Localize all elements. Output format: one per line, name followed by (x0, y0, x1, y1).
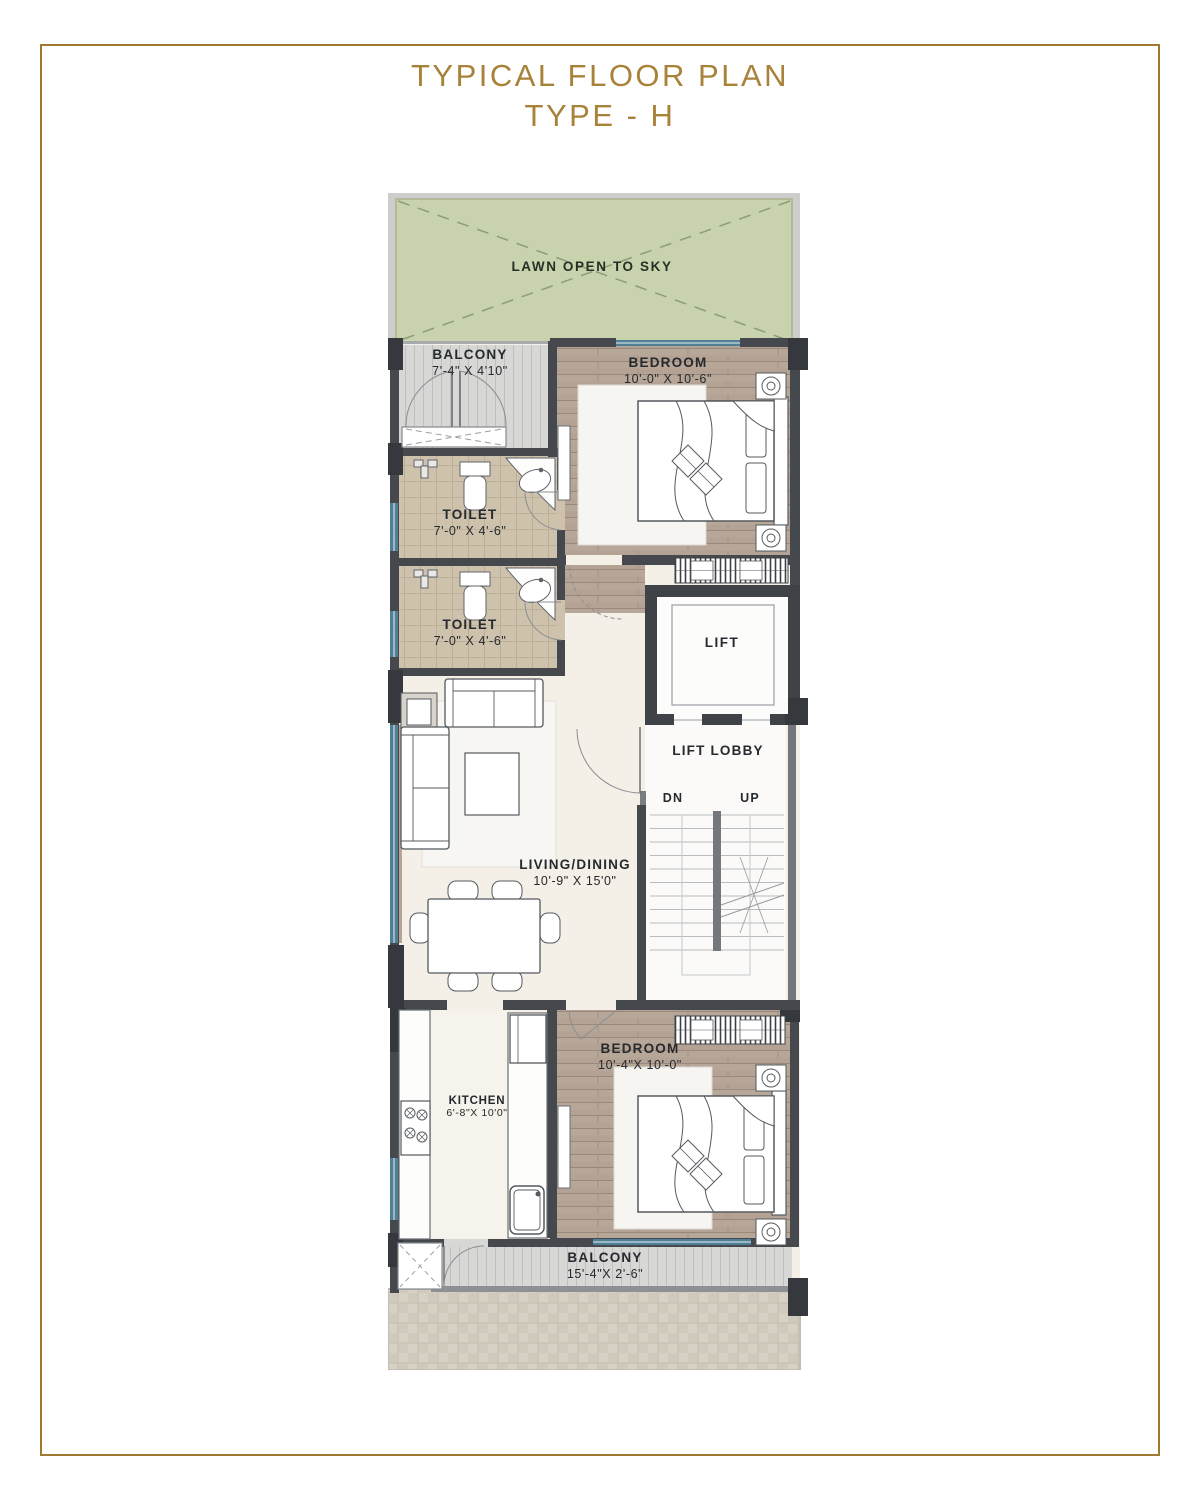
stairs-dn-label: DN (663, 791, 683, 805)
window-kitchen (390, 1158, 398, 1220)
sink-icon (510, 1186, 544, 1234)
tv-console-icon (558, 426, 570, 500)
tv-console-icon (558, 1106, 570, 1188)
wc-tank-icon (460, 462, 490, 476)
window-living (390, 725, 402, 943)
wardrobe-icon (675, 1016, 785, 1044)
window-bedroom-top (616, 340, 740, 346)
toilet-1-label: TOILET 7'-0" X 4'-6" (434, 507, 507, 538)
sofa-icon (401, 727, 449, 849)
window-toilet-2 (390, 611, 398, 657)
bed-icon (638, 1091, 786, 1215)
room-kitchen (430, 1011, 508, 1238)
floor-plan-page: TYPICAL FLOOR PLAN TYPE - H (0, 0, 1200, 1500)
nightstand-icon (756, 1219, 786, 1245)
stairs-divider-wall (713, 811, 721, 951)
lawn-label: LAWN OPEN TO SKY (511, 259, 672, 274)
kitchen-label: KITCHEN 6'-8"X 10'0" (446, 1095, 507, 1119)
page-title-line2: TYPE - H (0, 96, 1200, 136)
lift-lobby-label: LIFT LOBBY (672, 743, 764, 758)
floor-plan: LAWN OPEN TO SKY BALCONY 7'-4" X 4'10" B… (388, 193, 808, 1370)
hob-icon (401, 1101, 430, 1155)
wardrobe-icon (675, 558, 788, 583)
wc-tank-icon (460, 572, 490, 586)
wc-bowl-icon (464, 586, 486, 620)
stairs-up-label: UP (740, 791, 760, 805)
balcony-bottom-label: BALCONY 15'-4"X 2'-6" (567, 1250, 643, 1281)
window-toilet-1 (390, 503, 398, 551)
balcony-top-label: BALCONY 7'-4" X 4'10" (432, 347, 508, 378)
corner-table-icon (401, 693, 437, 731)
nightstand-icon (756, 1065, 786, 1091)
paved-patio (388, 1289, 800, 1370)
bedroom-bottom-label: BEDROOM 10'-4"X 10'-0" (598, 1041, 682, 1072)
page-title: TYPICAL FLOOR PLAN TYPE - H (0, 56, 1200, 136)
fridge-icon (510, 1015, 546, 1063)
wc-bowl-icon (464, 476, 486, 510)
sofa-icon (445, 679, 543, 727)
living-dining-label: LIVING/DINING 10'-9" X 15'0" (519, 857, 631, 888)
nightstand-icon (756, 525, 786, 551)
lift-cabin (657, 597, 788, 726)
dining-table-icon (428, 899, 540, 973)
shaft-icon (398, 1243, 442, 1289)
coffee-table-icon (465, 753, 519, 815)
lift-label: LIFT (705, 635, 740, 650)
page-title-line1: TYPICAL FLOOR PLAN (0, 56, 1200, 96)
balcony-planter-icon (402, 427, 506, 447)
bedroom-top-label: BEDROOM 10'-0" X 10'-6" (624, 355, 712, 386)
bed-icon (638, 397, 788, 525)
nightstand-icon (756, 373, 786, 399)
toilet-2-label: TOILET 7'-0" X 4'-6" (434, 617, 507, 648)
window-bedroom-bottom (593, 1239, 751, 1245)
